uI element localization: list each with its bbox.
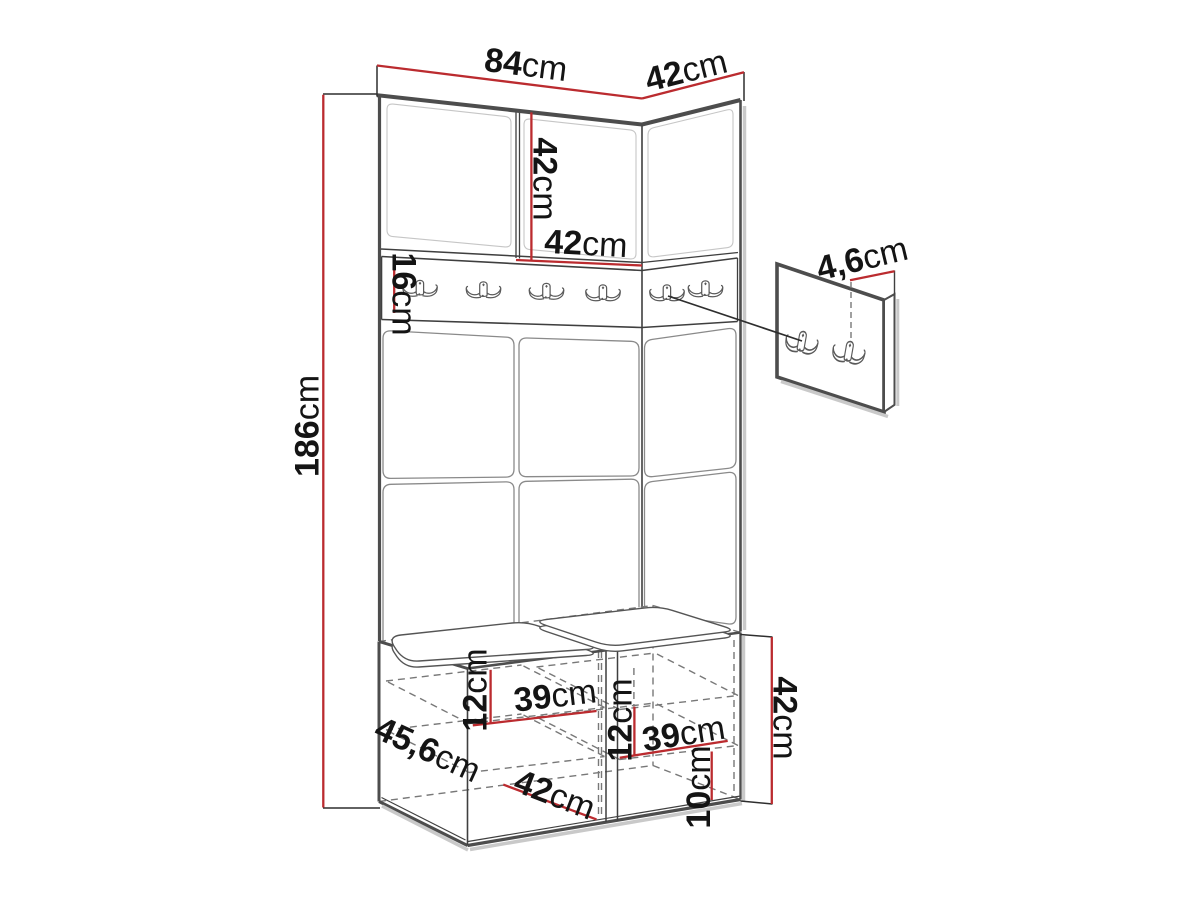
svg-text:186cm: 186cm bbox=[289, 375, 327, 477]
svg-text:16cm: 16cm bbox=[385, 252, 423, 335]
svg-text:10cm: 10cm bbox=[680, 745, 718, 828]
svg-text:12cm: 12cm bbox=[602, 678, 640, 761]
svg-text:42cm: 42cm bbox=[543, 223, 628, 265]
svg-text:12cm: 12cm bbox=[457, 648, 495, 731]
svg-text:42cm: 42cm bbox=[766, 676, 804, 759]
svg-text:42cm: 42cm bbox=[526, 137, 564, 220]
